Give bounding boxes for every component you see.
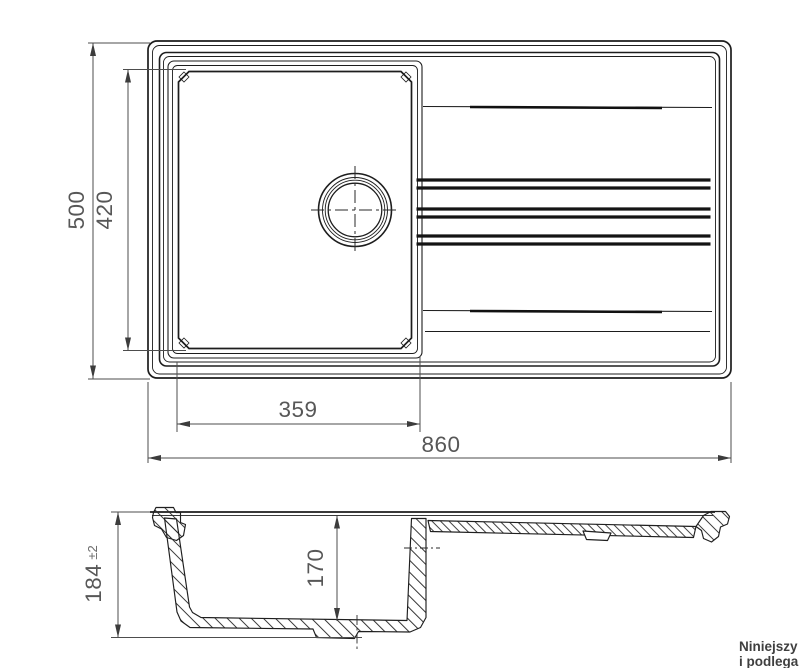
dim-basin-depth-label: 420 — [92, 190, 117, 229]
dim-overall-width-label: 860 — [421, 432, 460, 457]
drain-hole — [311, 166, 399, 254]
footnote-line-2: i podlega — [739, 654, 799, 668]
dim-basin-inner-depth-label: 170 — [303, 548, 328, 587]
sink-technical-drawing: 500 420 359 860 — [0, 0, 800, 668]
dim-overall-depth-label: 500 — [64, 190, 89, 229]
footnote-line-1: Niniejszy — [739, 639, 798, 654]
drainer-grooves — [417, 107, 713, 332]
drainer-board-section — [428, 521, 696, 538]
drainer-groove-section — [583, 531, 611, 541]
drainer-ridges — [417, 180, 711, 244]
dim-basin-depth: 420 — [92, 70, 186, 351]
basin-rim-inner — [173, 66, 418, 354]
dim-overall-height-label: 184±2 — [81, 545, 106, 602]
top-view: 500 420 359 860 — [64, 41, 731, 463]
dim-basin-inner-depth: 170 — [303, 516, 340, 622]
dim-basin-width-label: 359 — [278, 397, 317, 422]
right-flange-section — [696, 512, 730, 543]
section-view: 184±2 170 — [81, 508, 730, 651]
drawing-sheet: 500 420 359 860 — [0, 0, 800, 668]
footnote: Niniejszy i podlega — [739, 639, 799, 668]
dim-basin-width: 359 — [177, 356, 420, 432]
dim-overall-width: 860 — [148, 382, 731, 463]
basin-section-walls — [165, 518, 427, 639]
